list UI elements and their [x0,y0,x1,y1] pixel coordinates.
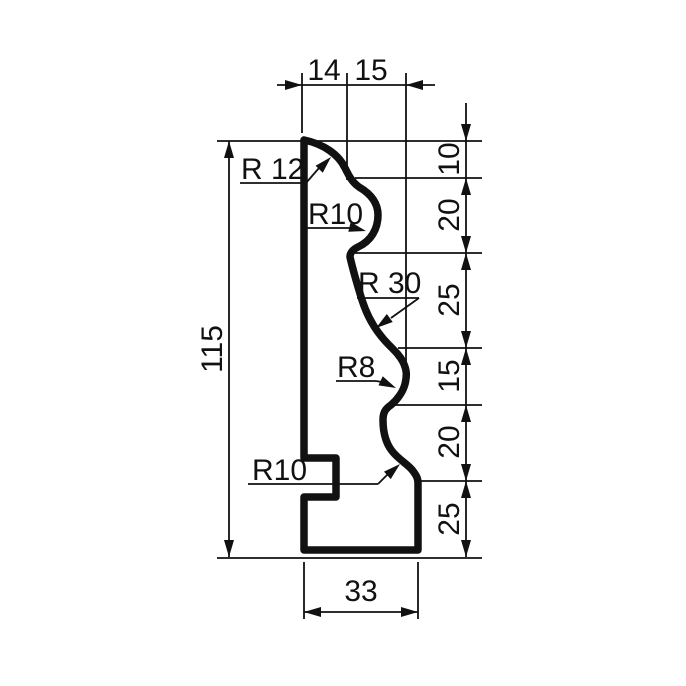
dim-label-top-15: 15 [354,54,387,87]
drawing-background [0,0,686,686]
radius-label-r30: R 30 [358,267,421,300]
molding-profile-drawing: 14 15 10 20 25 15 20 25 115 33 R 12 R10 … [0,0,686,686]
dim-label-height-115: 115 [196,325,229,373]
dim-label-width-33: 33 [344,575,377,608]
dim-label-right-20b: 20 [433,425,466,458]
dim-label-right-25b: 25 [433,502,466,535]
radius-label-r10-lower: R10 [252,454,307,487]
radius-label-r12: R 12 [241,153,304,186]
radius-label-r8: R8 [337,351,375,384]
technical-drawing-page: 14 15 10 20 25 15 20 25 115 33 R 12 R10 … [0,0,686,686]
radius-label-r10-upper: R10 [308,198,363,231]
dim-label-right-15: 15 [433,359,466,392]
dim-label-right-20a: 20 [433,198,466,231]
dim-label-right-10: 10 [433,142,466,175]
dim-label-top-14: 14 [307,54,340,87]
dim-label-right-25a: 25 [433,283,466,316]
